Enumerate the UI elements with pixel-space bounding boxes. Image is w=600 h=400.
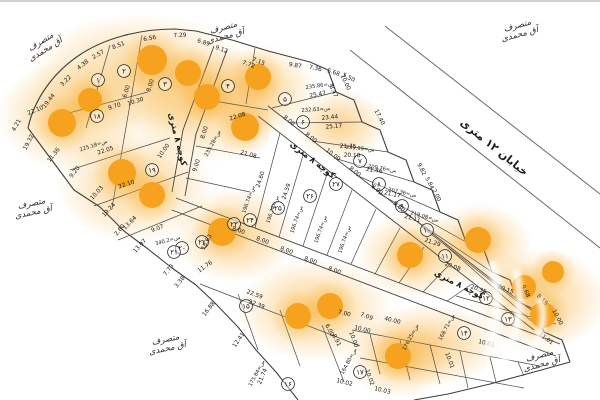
plot-number: ۱ <box>96 77 100 85</box>
highlight-dot <box>465 227 491 253</box>
plot-number: ۲۱ <box>170 249 178 257</box>
plot-number: ۱۶ <box>284 381 292 389</box>
plot-number: ۵ <box>283 96 287 104</box>
plot-number: ۴ <box>226 83 230 91</box>
plot-number: ۱۸ <box>93 113 101 121</box>
highlight-dot <box>78 88 102 112</box>
highlight-dot <box>194 84 220 110</box>
image-top-edge <box>0 0 600 2</box>
dimension-label: 9.82 <box>415 162 427 176</box>
dimension-label: 5.68 <box>326 68 340 78</box>
plot-number: ۶ <box>301 119 305 127</box>
plot-number: ۲۶ <box>306 193 314 201</box>
plot-number: ۲ <box>122 68 126 76</box>
highlight-dot <box>542 261 564 283</box>
plot-number: ۳ <box>163 81 167 89</box>
occupant-label: متصرفآق محمدی <box>146 331 189 358</box>
plot-number: ۱۱ <box>441 253 449 261</box>
dimension-label: 7.73 <box>163 263 176 277</box>
plot-number: ۱۳ <box>504 316 512 324</box>
dimension-label: 16.88 <box>202 301 217 318</box>
dimension-label: 2.00 <box>430 188 442 202</box>
dimension-label: 24.59 <box>282 183 293 201</box>
plot-map-image: ۱۲۳۴۵۶۷۸۹۱۰۱۱۱۲۱۳۱۴۱۵۱۶۱۷۱۸۱۹۲۰۲۱۲۲۲۳۲۴۲… <box>0 0 600 400</box>
dimension-label: 12.41 <box>232 332 247 349</box>
occupant-label: متصرفآق محمدی <box>12 195 55 222</box>
occupant-label: متصرفآق محمدی <box>498 16 542 45</box>
highlight-dot <box>397 242 423 268</box>
plot-number: ۱۷ <box>356 369 364 377</box>
cadastral-map-svg: ۱۲۳۴۵۶۷۸۹۱۰۱۱۱۲۱۳۱۴۱۵۱۶۱۷۱۸۱۹۲۰۲۱۲۲۲۳۲۴۲… <box>0 0 600 400</box>
area-label: س=196.74 <box>337 225 353 254</box>
area-label: س=196.74 <box>313 215 329 244</box>
dimension-label: 24.60 <box>256 171 267 189</box>
dimension-label: 20.18 <box>344 153 361 160</box>
dimension-label: 7.29 <box>173 33 186 39</box>
plot-number: ۱۰ <box>423 227 431 235</box>
plot-number: ۲۷ <box>332 181 340 189</box>
plot-number: ۱۴ <box>460 330 468 338</box>
highlight-dot <box>139 182 165 208</box>
plot-number: ۱۹ <box>148 167 156 175</box>
plot-number: ۲۴ <box>246 217 254 225</box>
street-label: خیابان ۱۲ متری <box>458 116 531 179</box>
dimension-label: 10.02 <box>335 378 353 388</box>
